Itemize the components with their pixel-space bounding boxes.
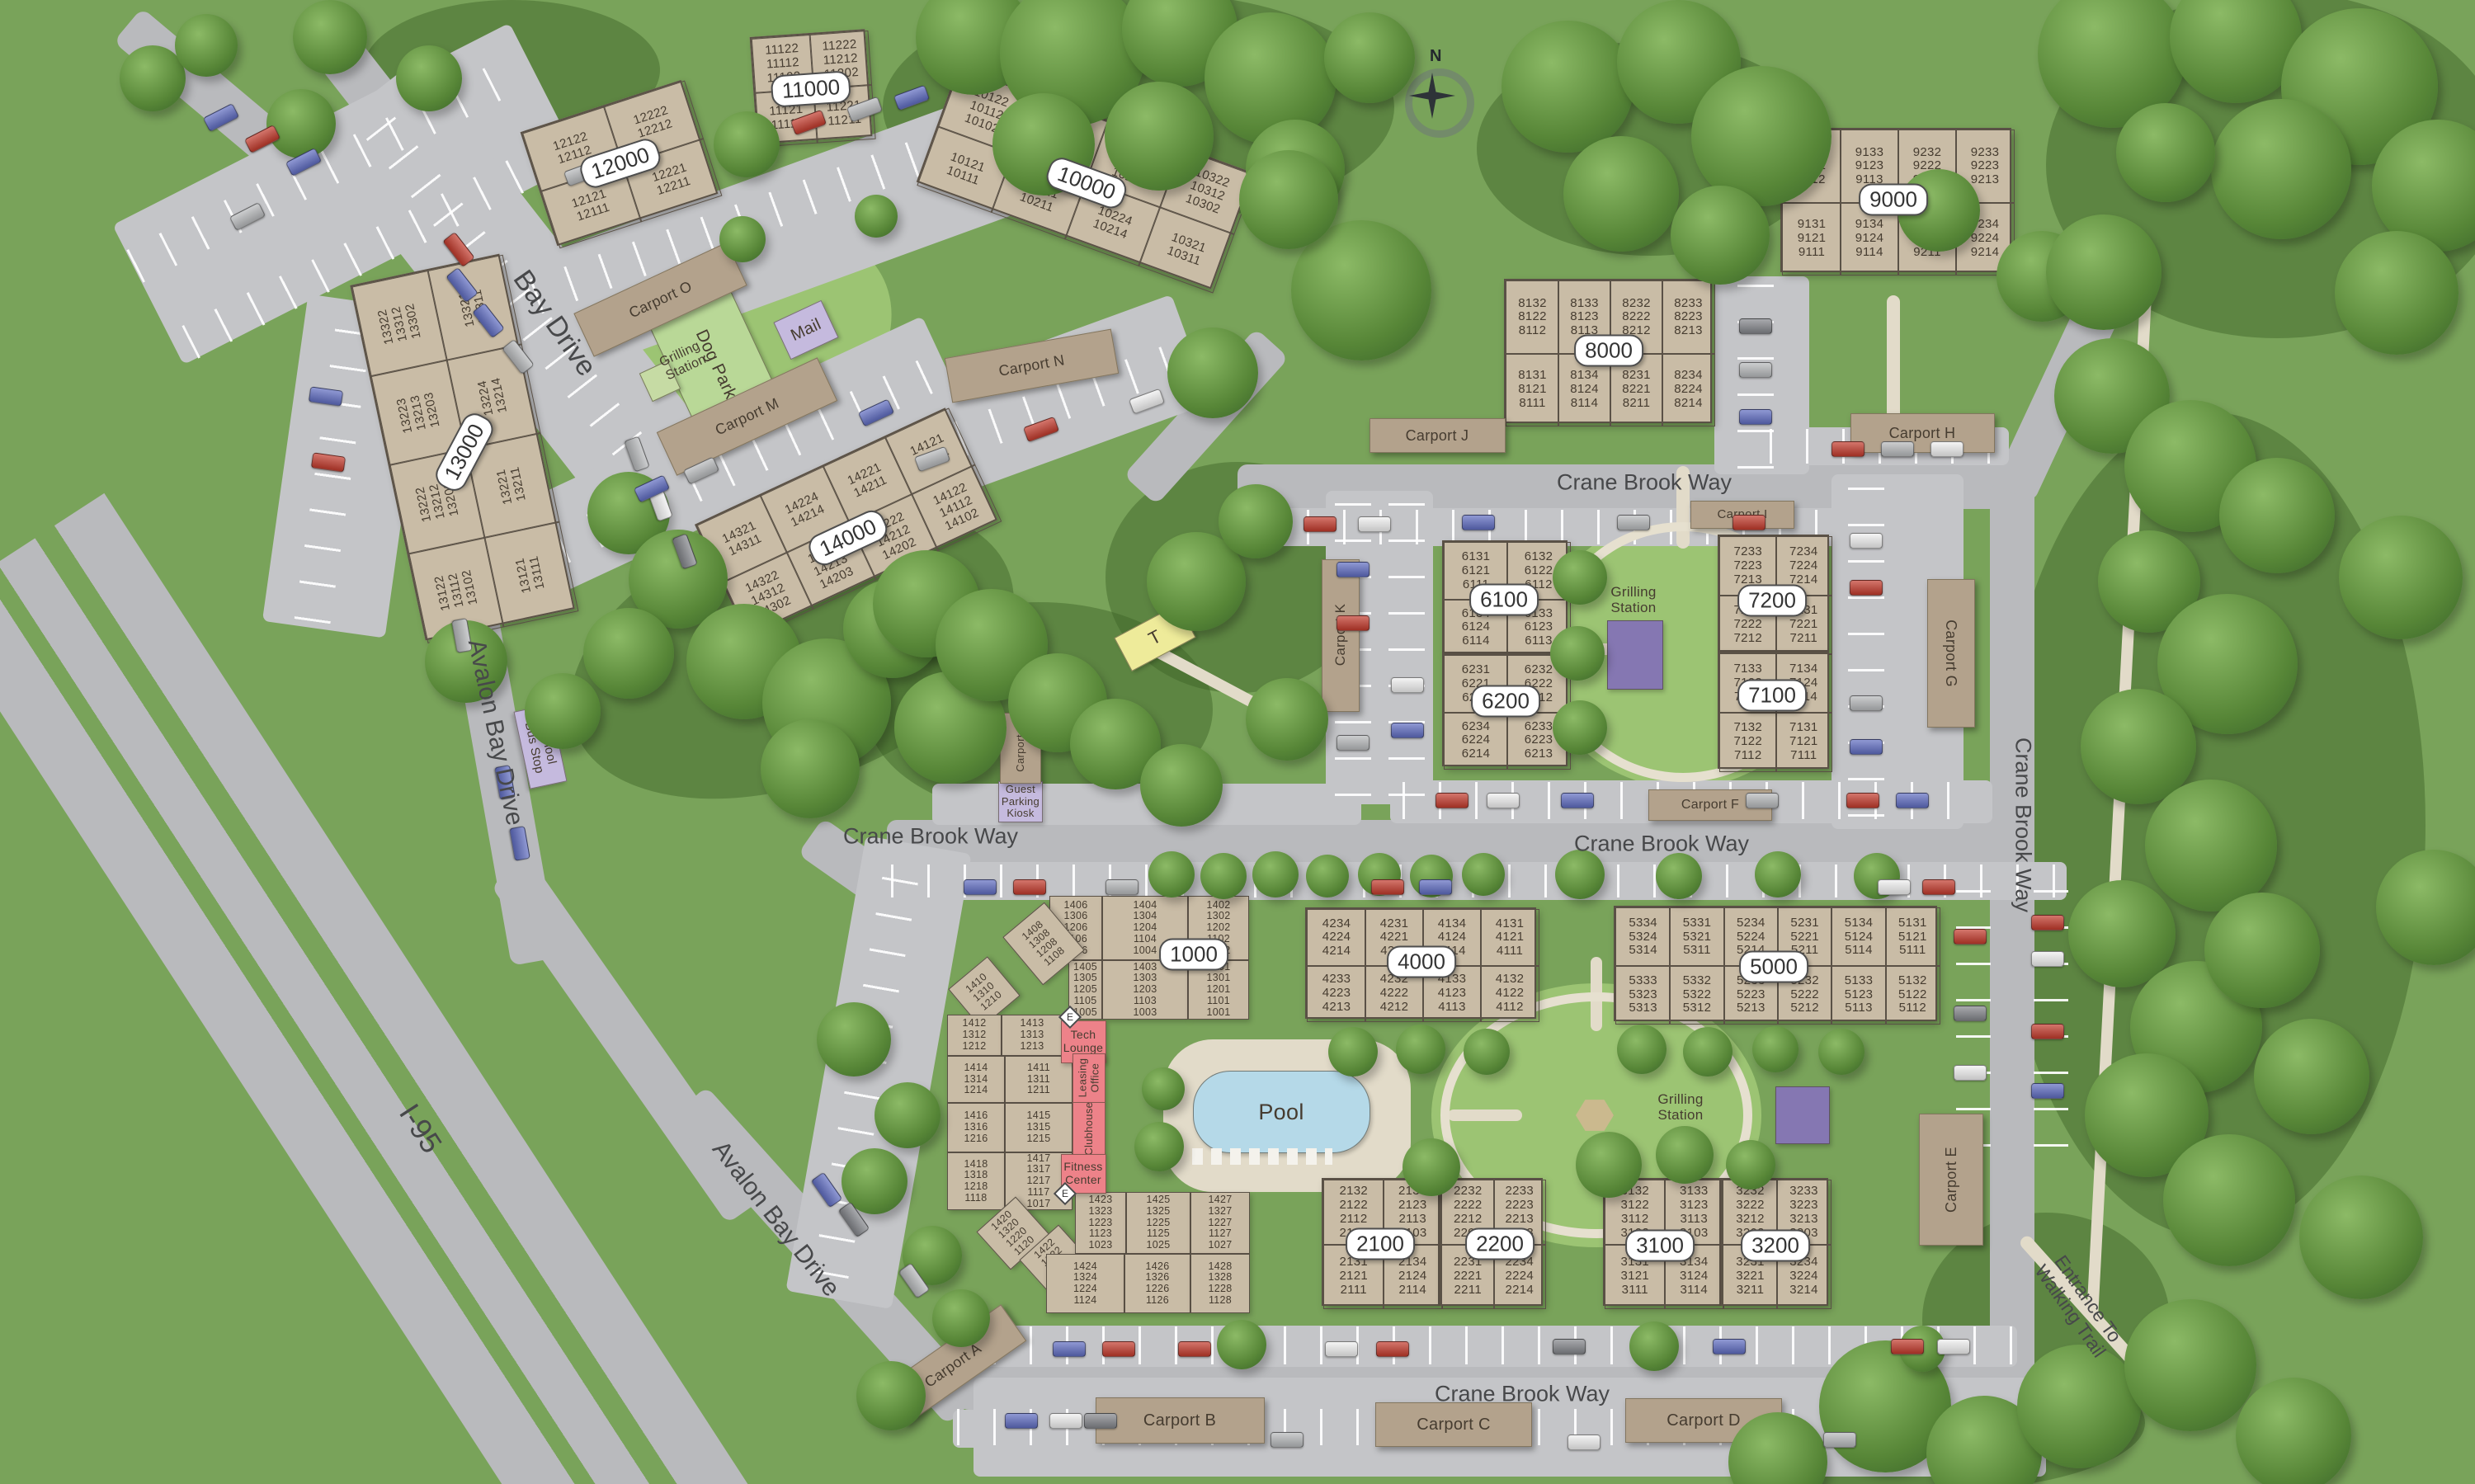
unit-cell: 533253225312 — [1669, 965, 1724, 1025]
car — [1178, 1341, 1211, 1357]
tree — [719, 216, 766, 262]
car — [1005, 1413, 1038, 1429]
car — [2031, 1024, 2064, 1039]
building-label-7100: 7100 — [1737, 679, 1807, 711]
tree — [396, 45, 462, 111]
unit-cell: 813281228112 — [1506, 280, 1559, 355]
car — [1084, 1413, 1117, 1429]
car — [1553, 1339, 1586, 1354]
unit-cell: 423342234213 — [1307, 965, 1366, 1023]
tree — [855, 195, 898, 238]
street-label: Crane Brook Way — [843, 823, 1018, 849]
amenity-leasing-office: LeasingOffice — [1072, 1053, 1105, 1103]
tree — [1239, 150, 1338, 249]
building-label-5000: 5000 — [1739, 950, 1808, 982]
tree — [1501, 21, 1633, 153]
tree — [2335, 231, 2458, 355]
car — [1391, 723, 1424, 738]
unit-cell: 141613161216 — [947, 1103, 1005, 1152]
car — [2031, 915, 2064, 930]
tree — [1142, 1067, 1185, 1110]
tree — [1656, 853, 1702, 899]
car — [1850, 695, 1883, 711]
car — [1831, 441, 1864, 457]
unit-cell: 533453245314 — [1615, 907, 1671, 967]
tree — [1328, 1027, 1378, 1076]
street-label: Crane Brook Way — [1574, 831, 1749, 856]
tree — [293, 0, 367, 74]
tree — [1462, 853, 1505, 896]
car — [1487, 793, 1520, 808]
building-label-7200: 7200 — [1737, 584, 1807, 616]
unit-cell: 813181218111 — [1506, 353, 1559, 427]
car — [1567, 1435, 1600, 1450]
car — [1102, 1341, 1135, 1357]
unit-cell: 713271227112 — [1719, 712, 1777, 772]
car — [1954, 929, 1987, 945]
amenity-playground-n — [1607, 620, 1663, 690]
unit-cell: 413141214111 — [1480, 909, 1539, 967]
carport-g: Carport G — [1927, 579, 1975, 728]
tree — [1396, 1025, 1445, 1074]
car — [964, 879, 997, 895]
unit-cell: 513151215111 — [1885, 907, 1940, 967]
tree — [1563, 136, 1679, 252]
unit-cell: 1418131812181118 — [947, 1152, 1005, 1210]
building-label-6200: 6200 — [1471, 685, 1540, 717]
unit-cell: 1424132412241124 — [1046, 1254, 1124, 1313]
tree — [2339, 516, 2463, 639]
tree — [2124, 1299, 2256, 1431]
car — [1325, 1341, 1358, 1357]
unit-cell: 623462246214 — [1444, 712, 1508, 770]
unit-cell: 913191219111 — [1782, 202, 1841, 276]
tree — [2219, 458, 2335, 573]
car — [1937, 1339, 1970, 1354]
car — [1732, 515, 1765, 530]
unit-cell: 14231323122311231023 — [1075, 1192, 1126, 1254]
unit-cell: 823482248214 — [1662, 353, 1715, 427]
unit-cell: 14271327122711271027 — [1190, 1192, 1250, 1254]
unit-cell: 513251225112 — [1885, 965, 1940, 1025]
tree — [1726, 1140, 1775, 1190]
tree — [1576, 1132, 1642, 1198]
tree — [1464, 1029, 1510, 1075]
tree — [583, 608, 674, 699]
tree — [1140, 744, 1223, 827]
tree — [714, 111, 780, 177]
carport-j: Carport J — [1369, 418, 1506, 453]
building-label-8000: 8000 — [1574, 334, 1643, 366]
tree — [1755, 851, 1801, 897]
car — [1878, 879, 1911, 895]
amenity-clubhouse: Clubhouse — [1072, 1102, 1105, 1155]
tree — [1402, 1138, 1460, 1196]
car — [1617, 515, 1650, 530]
amenity-guest-parking-kiosk: GuestParkingKiosk — [998, 781, 1043, 822]
tree — [1671, 186, 1770, 285]
car — [1891, 1339, 1924, 1354]
car — [1922, 879, 1955, 895]
car — [1391, 677, 1424, 693]
tree — [1691, 66, 1831, 206]
building-label-4000: 4000 — [1387, 945, 1456, 978]
tree — [2046, 214, 2161, 330]
car — [1376, 1341, 1409, 1357]
car — [1850, 533, 1883, 549]
tree — [856, 1361, 926, 1430]
car — [1746, 793, 1779, 808]
car — [1850, 739, 1883, 755]
compass-north-label: N — [1430, 47, 1441, 66]
compass: N — [1405, 68, 1459, 123]
unit-cell: 14251325122511251025 — [1126, 1192, 1190, 1254]
tree — [1656, 1126, 1714, 1184]
tree — [1252, 851, 1299, 897]
car — [1013, 879, 1046, 895]
carport-h: Carport H — [1850, 413, 1995, 453]
tree — [2299, 1175, 2423, 1299]
amenity-grilling-station-s: GrillingStation — [1631, 1082, 1730, 1132]
car — [1930, 441, 1963, 457]
car — [1419, 879, 1452, 895]
building-label-9000: 9000 — [1859, 183, 1928, 215]
carport-e: Carport E — [1919, 1114, 1983, 1246]
tree — [1553, 700, 1607, 755]
building-label-1000: 1000 — [1159, 938, 1228, 970]
car — [1561, 793, 1594, 808]
unit-cell: 713171217111 — [1775, 712, 1833, 772]
building-label-3100: 3100 — [1625, 1229, 1695, 1261]
unit-cell: 823382238213 — [1662, 280, 1715, 355]
compass-ring — [1405, 68, 1474, 138]
car — [1713, 1339, 1746, 1354]
car — [1049, 1413, 1082, 1429]
street-label: Crane Brook Way — [2010, 737, 2035, 912]
tree — [1324, 12, 1415, 103]
tree — [1617, 1025, 1666, 1074]
carport-c: Carport C — [1375, 1402, 1532, 1447]
tree — [1167, 327, 1258, 418]
building-label-6100: 6100 — [1469, 583, 1539, 615]
car — [1303, 516, 1336, 532]
car — [1823, 1432, 1856, 1448]
unit-cell: 533353235313 — [1615, 965, 1671, 1025]
tree — [2254, 1019, 2369, 1134]
tree — [1555, 850, 1605, 899]
tree — [761, 719, 860, 818]
car — [1270, 1432, 1303, 1448]
tree — [2211, 99, 2351, 239]
road — [1990, 483, 2034, 1411]
car — [1954, 1065, 1987, 1081]
tree — [1553, 550, 1607, 605]
tree — [525, 673, 601, 749]
car — [1850, 580, 1883, 596]
tree — [2204, 893, 2320, 1008]
unit-cell: 141413141214 — [947, 1056, 1005, 1103]
carport-k: Carport K — [1322, 559, 1360, 712]
building-label-3200: 3200 — [1741, 1229, 1810, 1261]
car — [1462, 515, 1495, 530]
car — [1336, 562, 1369, 577]
tree — [1629, 1321, 1679, 1371]
tree — [2116, 103, 2215, 202]
car — [1739, 318, 1772, 334]
tree — [1219, 484, 1293, 558]
building-label-2200: 2200 — [1465, 1227, 1534, 1260]
unit-cell: 141213121212 — [947, 1015, 1002, 1056]
unit-cell: 1426132612261126 — [1124, 1254, 1190, 1313]
car — [1739, 409, 1772, 425]
tree — [817, 1002, 891, 1076]
tree — [2017, 1345, 2141, 1468]
car — [1896, 793, 1929, 808]
car — [1053, 1341, 1086, 1357]
tree — [1200, 853, 1247, 899]
tree — [1105, 82, 1214, 191]
car — [1336, 735, 1369, 751]
car — [1881, 441, 1914, 457]
street-label: Crane Brook Way — [1435, 1381, 1610, 1406]
car — [1954, 1006, 1987, 1021]
car — [1371, 879, 1404, 895]
tree — [1148, 851, 1195, 897]
tree — [1683, 1027, 1732, 1076]
building-label-11000: 11000 — [771, 70, 852, 108]
amenity-playground-s — [1775, 1086, 1830, 1144]
car — [1358, 516, 1391, 532]
car — [1105, 879, 1138, 895]
unit-cell: 513451245114 — [1831, 907, 1886, 967]
unit-cell: 413241224112 — [1480, 965, 1539, 1023]
tree — [1246, 678, 1328, 761]
amenity-pool-chairs — [1192, 1148, 1332, 1165]
car — [2031, 951, 2064, 967]
carport-b: Carport B — [1096, 1397, 1265, 1444]
unit-cell: 513351235113 — [1831, 965, 1886, 1025]
tree — [932, 1289, 990, 1347]
car — [2031, 1083, 2064, 1099]
tree — [1217, 1320, 1266, 1369]
unit-cell: 141313131213 — [1002, 1015, 1063, 1056]
building-label-2100: 2100 — [1346, 1227, 1415, 1260]
tree — [1752, 1026, 1798, 1072]
tree — [175, 14, 238, 77]
tree — [2236, 1378, 2351, 1484]
car — [1336, 615, 1369, 631]
tree — [266, 89, 336, 158]
unit-cell: 1428132812281128 — [1190, 1254, 1250, 1313]
unit-cell: 141513151215 — [1005, 1103, 1072, 1152]
amenity-pool: Pool — [1193, 1071, 1370, 1153]
car — [1739, 362, 1772, 378]
site-map: N 11122111121110211222112121120211121111… — [0, 0, 2475, 1484]
car — [1846, 793, 1879, 808]
tree — [1306, 855, 1349, 897]
tree — [874, 1082, 940, 1148]
tree — [1550, 626, 1605, 681]
tree — [2163, 1134, 2295, 1266]
unit-cell: 533153215311 — [1669, 907, 1724, 967]
tree — [1818, 1029, 1864, 1075]
tree — [1134, 1122, 1184, 1171]
unit-cell: 423442244214 — [1307, 909, 1366, 967]
street-label: Crane Brook Way — [1557, 469, 1732, 495]
tree — [2145, 780, 2277, 912]
car — [1435, 793, 1468, 808]
